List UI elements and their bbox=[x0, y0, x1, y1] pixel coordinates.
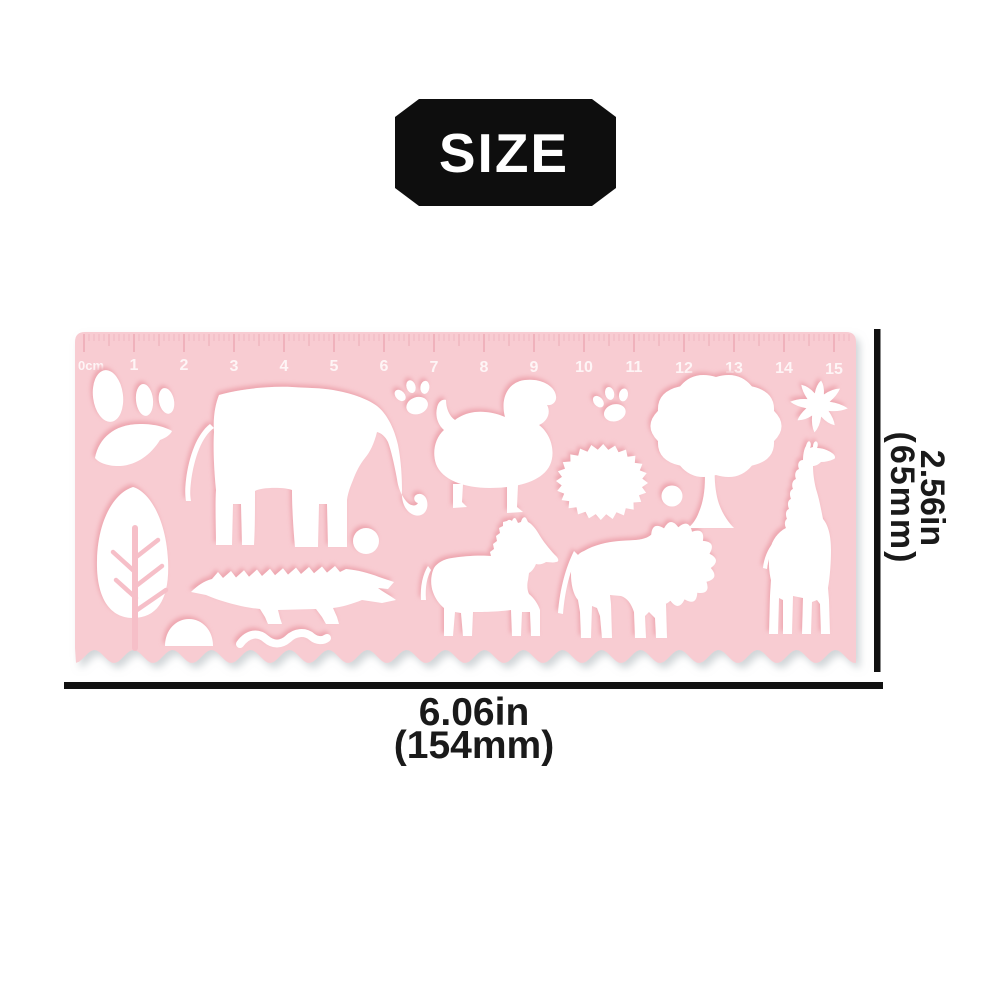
svg-text:(65mm): (65mm) bbox=[883, 432, 921, 565]
svg-text:13: 13 bbox=[725, 360, 743, 377]
svg-text:9: 9 bbox=[530, 359, 539, 376]
svg-text:(154mm): (154mm) bbox=[394, 724, 554, 767]
svg-text:11: 11 bbox=[626, 359, 643, 376]
svg-text:0cm: 0cm bbox=[78, 358, 104, 373]
svg-text:5: 5 bbox=[330, 358, 339, 375]
svg-text:8: 8 bbox=[480, 359, 489, 376]
svg-text:4: 4 bbox=[280, 358, 289, 375]
svg-text:1: 1 bbox=[130, 357, 139, 374]
svg-text:7: 7 bbox=[430, 359, 439, 376]
svg-text:6: 6 bbox=[380, 358, 389, 375]
svg-text:15: 15 bbox=[825, 361, 843, 378]
svg-text:10: 10 bbox=[575, 359, 593, 376]
svg-text:3: 3 bbox=[230, 358, 239, 375]
svg-text:12: 12 bbox=[675, 360, 693, 377]
svg-text:SIZE: SIZE bbox=[439, 122, 569, 184]
svg-text:2: 2 bbox=[180, 357, 189, 374]
svg-text:14: 14 bbox=[775, 360, 793, 377]
